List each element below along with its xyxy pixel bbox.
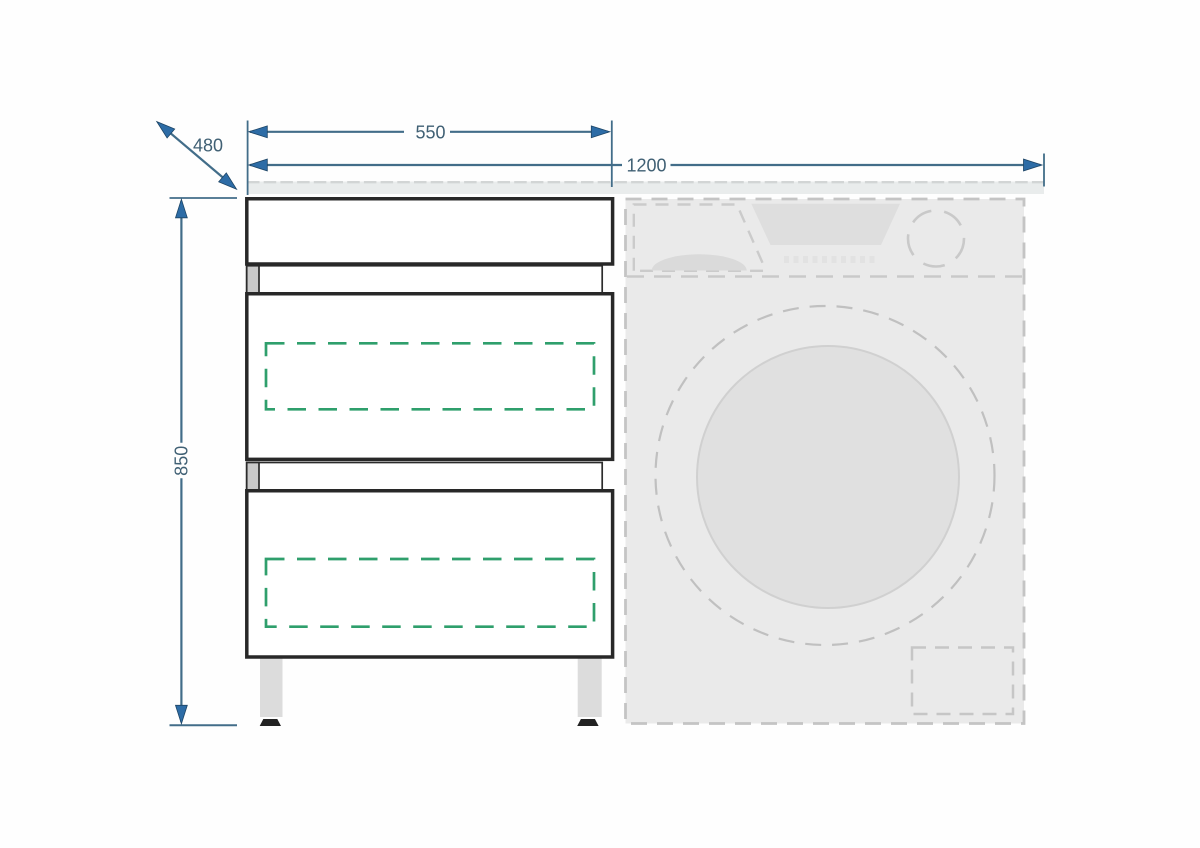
svg-text:550: 550 bbox=[415, 123, 445, 143]
svg-text:850: 850 bbox=[172, 446, 192, 476]
svg-text:1200: 1200 bbox=[626, 155, 666, 175]
svg-text:480: 480 bbox=[193, 136, 223, 156]
